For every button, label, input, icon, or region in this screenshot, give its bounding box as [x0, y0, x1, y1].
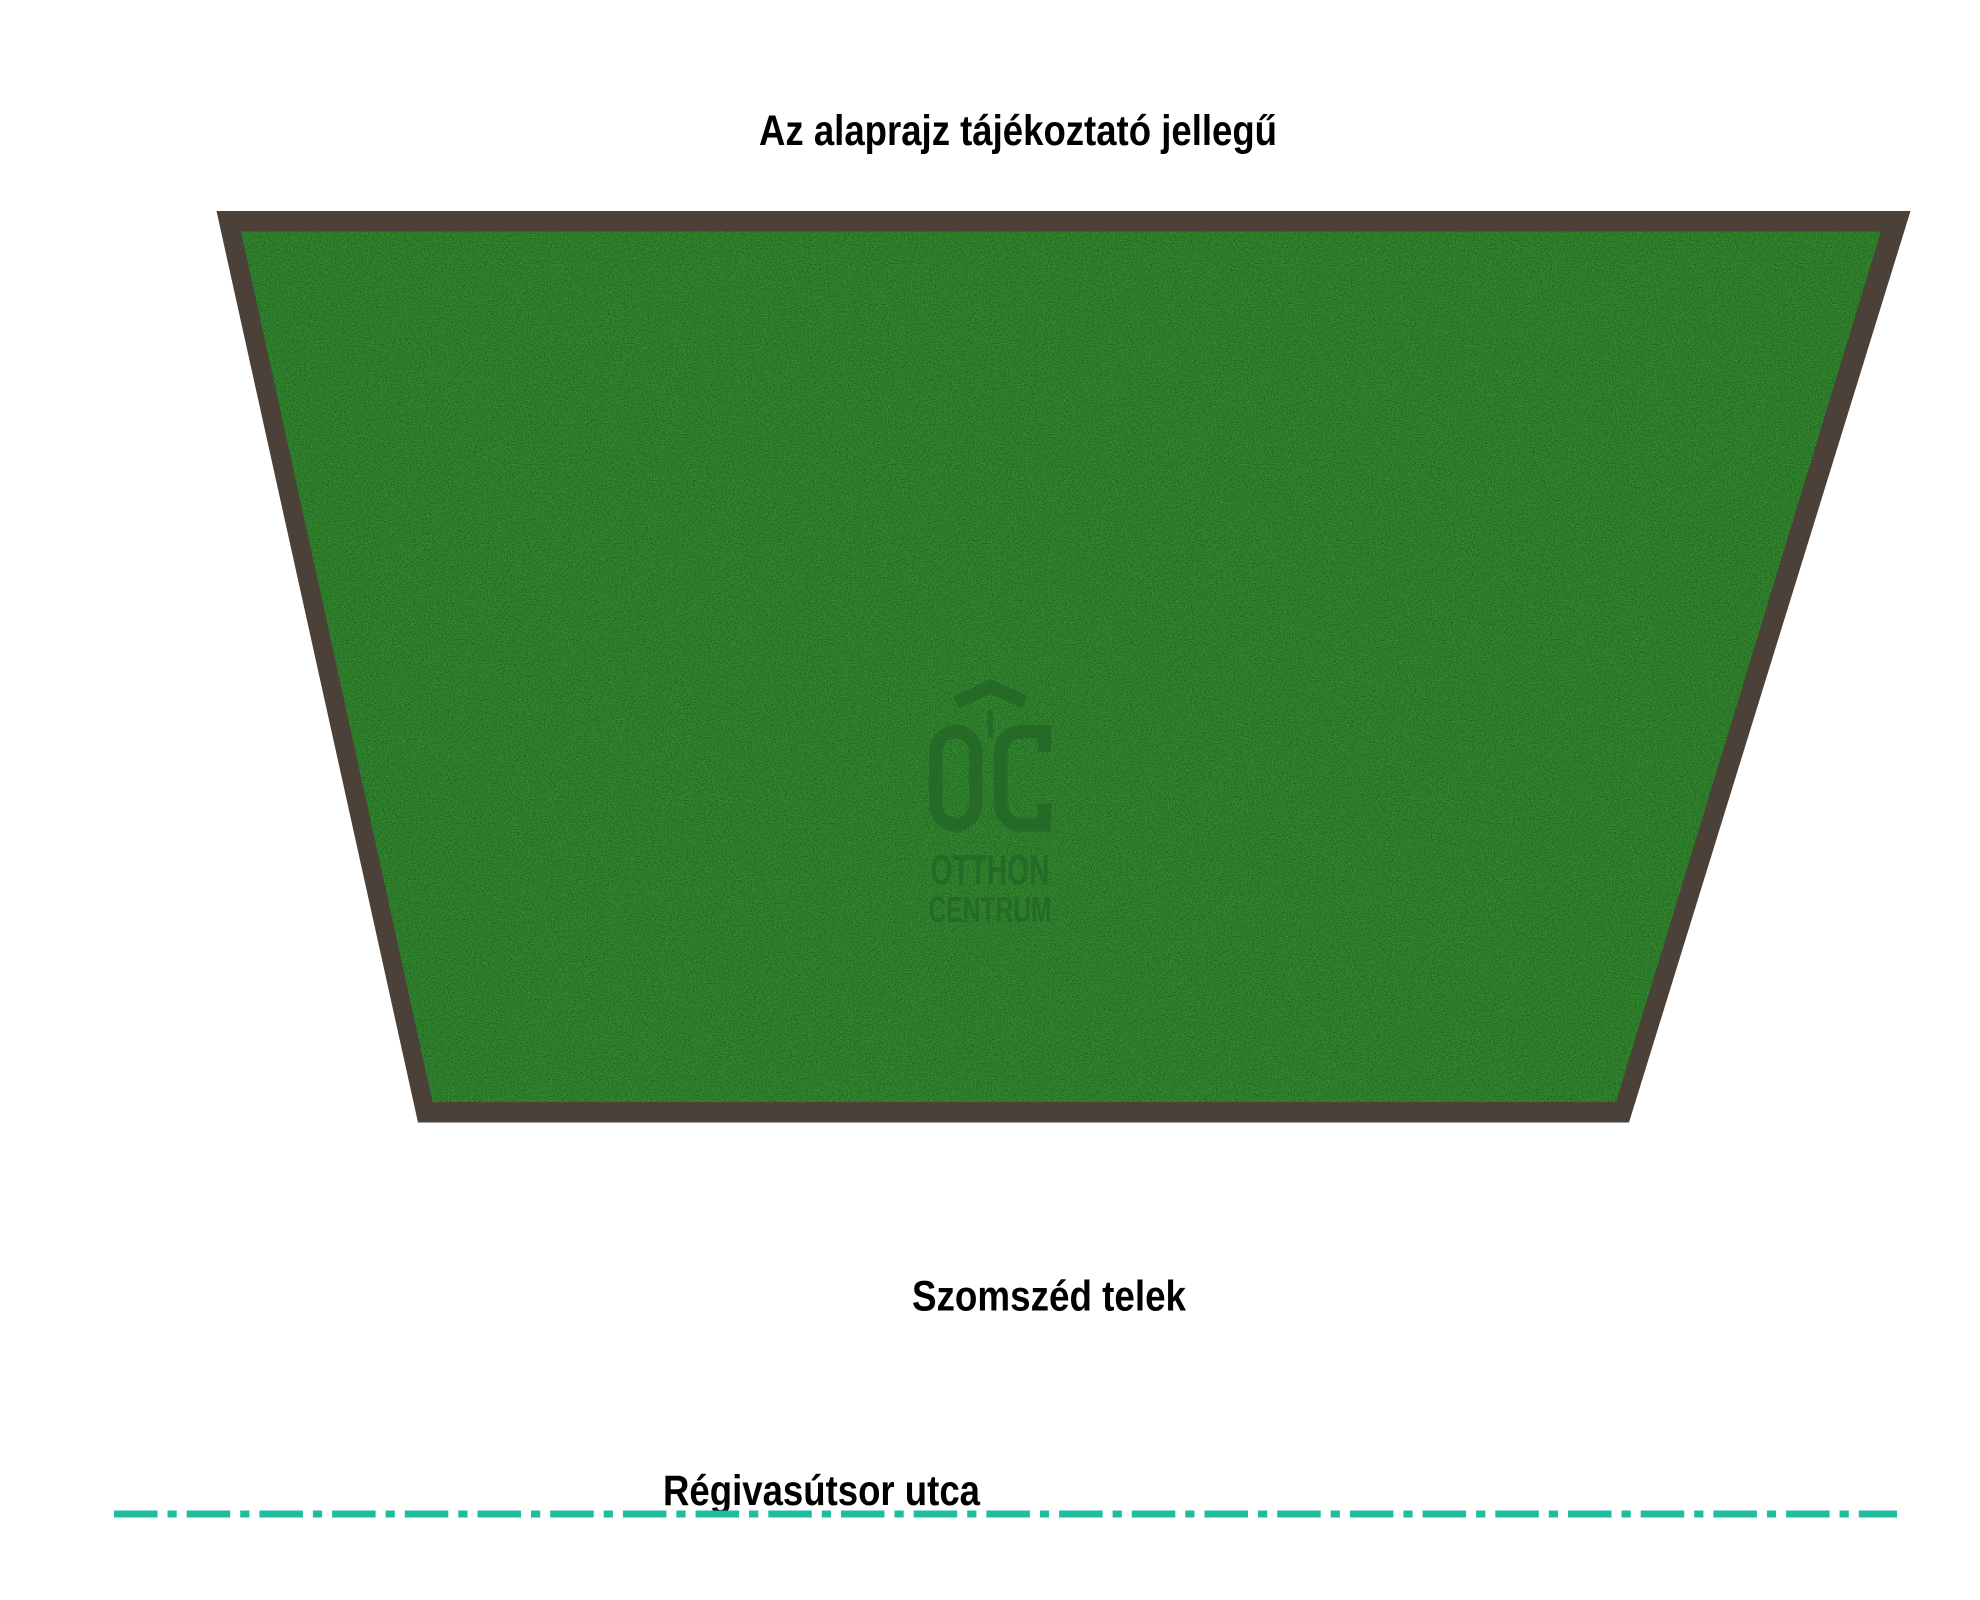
svg-text:CENTRUM: CENTRUM [929, 889, 1052, 930]
svg-text:Szomszéd telek: Szomszéd telek [912, 1273, 1186, 1321]
svg-text:Az alaprajz tájékoztató jelleg: Az alaprajz tájékoztató jellegű [759, 107, 1277, 155]
svg-text:OTTHON: OTTHON [931, 847, 1050, 895]
svg-text:Régivasútsor utca: Régivasútsor utca [663, 1467, 981, 1515]
